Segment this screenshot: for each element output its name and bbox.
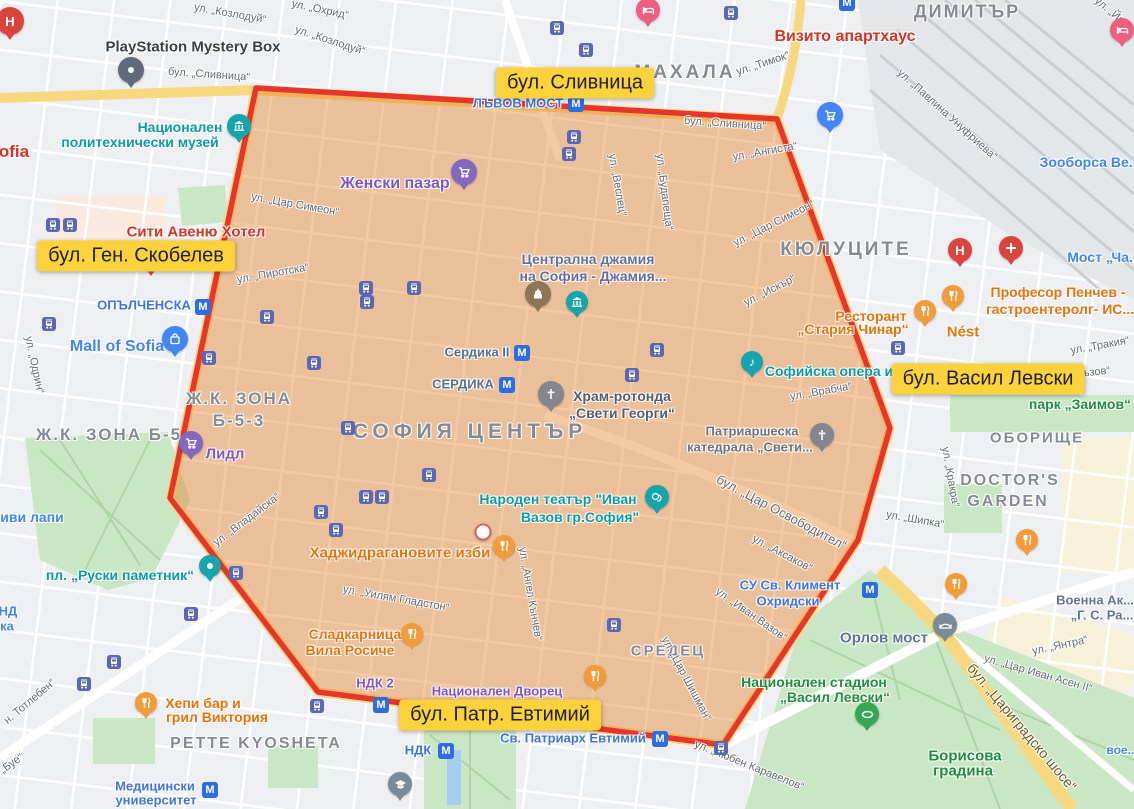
poi-label[interactable]: катедрала „Свети... <box>687 441 813 456</box>
fork-pin[interactable] <box>493 535 515 562</box>
area-label: DOCTOR'S <box>960 472 1060 490</box>
pin-tail <box>948 305 958 312</box>
pin-tail <box>141 712 151 719</box>
bag-pin[interactable] <box>162 326 188 357</box>
pin-tail <box>825 126 835 133</box>
hospital-h-pin[interactable]: H <box>0 7 24 40</box>
fork-icon <box>584 665 606 687</box>
fork-pin[interactable] <box>135 692 157 719</box>
museum-icon <box>566 291 588 313</box>
poi-label[interactable]: вое... <box>1106 744 1134 758</box>
area-label: ОБОРИЩЕ <box>990 429 1084 446</box>
poi-label[interactable]: Вазов гр.София" <box>521 509 639 525</box>
tram-stop-icon[interactable] <box>650 343 664 357</box>
poi-label[interactable]: Професор Пенчев - <box>991 284 1126 300</box>
poi-label[interactable]: пл. „Руски паметник“ <box>46 567 194 583</box>
tram-stop-icon[interactable] <box>63 218 77 232</box>
area-label: КЮЛУЦИТЕ <box>780 239 911 261</box>
map-canvas[interactable]: МАХАЛАДИМИТЪРКЮЛУЦИТЕСОФИЯ ЦЕНТЪРЖ.К. ЗО… <box>0 0 1134 809</box>
tram-stop-icon[interactable] <box>107 655 121 669</box>
poi-label[interactable]: „Стария Чинар“ <box>797 321 908 337</box>
poi-label[interactable]: Сладкарница <box>309 626 402 642</box>
pin-tail <box>546 405 556 412</box>
tram-stop-icon[interactable] <box>260 310 274 324</box>
music-pin[interactable]: ♪ <box>741 351 763 378</box>
pin-tail <box>1022 549 1032 556</box>
poi-label[interactable]: Зооборса Ве... <box>1040 154 1134 170</box>
stadium-icon <box>855 702 879 726</box>
poi-label[interactable]: Патриаршеска <box>706 425 799 440</box>
fork-pin[interactable] <box>584 665 606 692</box>
pin-tail <box>186 453 196 460</box>
poi-label[interactable]: Национален Дворец <box>432 685 563 700</box>
tram-stop-icon[interactable] <box>229 566 243 580</box>
selected-location-dot[interactable] <box>475 524 492 541</box>
poi-label[interactable]: „Г. С. Ра... <box>1071 609 1134 624</box>
tram-stop-icon[interactable] <box>184 607 198 621</box>
pin-tail <box>170 350 180 357</box>
tram-stop-icon[interactable] <box>307 356 321 370</box>
generic-pin[interactable] <box>199 555 221 582</box>
bridge-icon <box>933 613 957 637</box>
tram-stop-icon[interactable] <box>567 130 581 144</box>
fork-icon <box>135 692 157 714</box>
pin-tail <box>395 794 405 801</box>
metro-station-icon[interactable]: М <box>373 697 389 713</box>
fork-icon <box>401 623 423 645</box>
mosque-pin[interactable] <box>525 281 551 312</box>
poi-label[interactable]: Вила Росиче <box>306 642 395 658</box>
metro-station-icon[interactable]: М <box>839 0 855 11</box>
poi-label[interactable]: Визито апартхаус <box>774 28 915 46</box>
tram-stop-icon[interactable] <box>202 351 216 365</box>
generic-icon <box>199 555 221 577</box>
poi-label[interactable]: Св. Патриарх Евтимий <box>500 732 646 747</box>
poi-label[interactable]: PlayStation Mystery Box <box>105 38 280 55</box>
grad-cap-icon <box>388 772 412 796</box>
mosque-icon <box>525 281 551 307</box>
street-highlight-label: бул. Сливница <box>496 68 654 99</box>
poi-label[interactable]: Храм-ротонда <box>573 388 671 404</box>
metro-station-icon[interactable]: М <box>438 743 454 759</box>
poi-label[interactable]: ОПЪЛЧЕНСКА <box>97 299 191 314</box>
fork-icon <box>914 300 936 322</box>
tram-stop-icon[interactable] <box>329 523 343 537</box>
pin-tail <box>940 635 950 642</box>
pin-tail <box>951 593 961 600</box>
poi-label[interactable]: грил Виктория <box>166 709 268 725</box>
area-label: Ж.К. ЗОНА <box>186 389 292 409</box>
poi-label[interactable]: Национален стадион <box>741 674 887 690</box>
fork-icon <box>945 573 967 595</box>
poi-label[interactable]: Лидл <box>206 445 245 462</box>
poi-label[interactable]: Национален <box>138 119 223 135</box>
poi-label[interactable]: Военна Ак... <box>1056 594 1134 609</box>
museum-pin[interactable] <box>566 291 588 318</box>
hospital-cross-pin[interactable] <box>999 236 1023 265</box>
poi-label[interactable]: иви лапи <box>0 509 63 525</box>
metro-station-icon[interactable]: М <box>514 345 530 361</box>
metro-station-icon[interactable]: М <box>652 731 668 747</box>
music-icon: ♪ <box>741 351 763 373</box>
theater-pin[interactable] <box>645 485 669 514</box>
poi-label[interactable]: университет <box>115 794 196 809</box>
poi-label[interactable]: Сити Авеню Хотел <box>127 223 266 240</box>
street-highlight-label: бул. Патр. Евтимий <box>399 700 601 731</box>
tram-stop-icon[interactable] <box>341 421 355 435</box>
poi-label[interactable]: Nést <box>947 323 980 340</box>
cart-pin[interactable] <box>179 431 203 460</box>
fork-icon <box>1016 529 1038 551</box>
bed-pin[interactable] <box>636 0 660 27</box>
poi-label[interactable]: ЛЪВОВ МОСТ <box>473 97 564 112</box>
stadium-pin[interactable] <box>855 702 879 731</box>
poi-label[interactable]: парк „Заимов“ <box>1029 396 1131 412</box>
pin-tail <box>499 555 509 562</box>
poi-label[interactable]: ofia <box>0 142 29 162</box>
pin-tail <box>533 305 543 312</box>
pin-tail <box>652 507 662 514</box>
area-label: СОФИЯ ЦЕНТЪР <box>353 420 588 444</box>
hospital-h-icon: H <box>0 7 24 35</box>
pin-tail <box>5 33 15 40</box>
tram-stop-icon[interactable] <box>46 218 60 232</box>
tram-stop-icon[interactable] <box>550 21 564 35</box>
pin-tail <box>572 311 582 318</box>
tram-stop-icon[interactable] <box>891 341 905 355</box>
church-icon <box>538 381 564 407</box>
grad-cap-pin[interactable] <box>388 772 412 801</box>
fork-pin[interactable] <box>914 300 936 327</box>
street-highlight-label: бул. Васил Левски <box>892 364 1085 395</box>
bed-pin[interactable] <box>1110 18 1134 47</box>
area-label: PETTE KYOSHETA <box>170 735 342 753</box>
poi-label[interactable]: градина <box>933 762 993 779</box>
church-pin[interactable] <box>538 381 564 412</box>
tram-stop-icon[interactable] <box>407 281 421 295</box>
cart-icon <box>179 431 203 455</box>
church-pin[interactable] <box>810 423 834 452</box>
pin-tail <box>126 81 136 88</box>
poi-label[interactable]: „Свети Георги“ <box>569 405 675 421</box>
poi-label[interactable]: Хаджидрагановите изби <box>310 544 491 561</box>
tram-stop-icon[interactable] <box>625 368 639 382</box>
tram-stop-icon[interactable] <box>359 281 373 295</box>
pin-tail <box>862 724 872 731</box>
tram-stop-icon[interactable] <box>724 6 738 20</box>
poi-label[interactable]: Централна джамия <box>522 251 655 267</box>
museum-icon <box>227 114 251 138</box>
hospital-cross-icon <box>999 236 1023 260</box>
poi-label[interactable]: Сердика II <box>444 346 509 361</box>
poi-label[interactable]: Mall of Sofia <box>70 338 164 356</box>
tram-stop-icon[interactable] <box>607 618 621 632</box>
street-highlight-label: бул. Ген. Скобелев <box>37 241 235 272</box>
generic-icon <box>118 57 144 83</box>
poi-label[interactable]: гастроентеролг- ИС... <box>986 301 1134 317</box>
pin-tail <box>407 643 417 650</box>
poi-label[interactable]: Народен театър "Иван <box>479 491 636 507</box>
theater-icon <box>645 485 669 509</box>
fork-pin[interactable] <box>401 623 423 650</box>
pin-tail <box>920 320 930 327</box>
bag-icon <box>162 326 188 352</box>
poi-label[interactable]: СУ Св. Климент <box>740 579 841 594</box>
area-label: ДИМИТЪР <box>914 2 1020 23</box>
poi-label[interactable]: СЕРДИКА <box>432 378 494 393</box>
metro-station-icon[interactable]: М <box>862 582 878 598</box>
poi-label[interactable]: НДК 2 <box>356 677 393 692</box>
poi-label[interactable]: Мост „Ча... <box>1067 249 1134 265</box>
pin-tail <box>1117 40 1127 47</box>
pin-tail <box>955 260 965 267</box>
poi-label[interactable]: ка <box>0 620 14 635</box>
church-icon <box>810 423 834 447</box>
poi-label[interactable]: Женски пазар <box>340 175 449 193</box>
hospital-h-icon: H <box>948 238 972 262</box>
area-label: Ж.К. ЗОНА Б-5 <box>36 425 182 445</box>
tram-stop-icon[interactable] <box>42 317 56 331</box>
pin-tail <box>1006 258 1016 265</box>
tram-stop-icon[interactable] <box>579 43 593 57</box>
tram-stop-icon[interactable] <box>314 505 328 519</box>
fork-pin[interactable] <box>945 573 967 600</box>
pin-tail <box>747 371 757 378</box>
fork-pin[interactable] <box>1016 529 1038 556</box>
bed-icon <box>1110 18 1134 42</box>
pin-tail <box>205 575 215 582</box>
pin-tail <box>817 445 827 452</box>
poi-label[interactable]: НД <box>0 605 17 620</box>
metro-station-icon[interactable]: М <box>499 377 515 393</box>
poi-label[interactable]: Орлов мост <box>840 629 928 646</box>
pin-tail <box>643 20 653 27</box>
tram-stop-icon[interactable] <box>714 741 728 755</box>
fork-icon <box>493 535 515 557</box>
tram-stop-icon[interactable] <box>77 677 91 691</box>
poi-label[interactable]: Охридски <box>756 595 819 610</box>
bridge-pin[interactable] <box>933 613 957 642</box>
cart-icon <box>817 102 843 128</box>
metro-station-icon[interactable]: М <box>202 782 218 798</box>
area-label: Б-5-3 <box>213 411 265 431</box>
metro-station-icon[interactable]: М <box>195 299 211 315</box>
hospital-h-pin[interactable]: H <box>948 238 972 267</box>
pin-tail <box>234 136 244 143</box>
tram-stop-icon[interactable] <box>310 699 324 713</box>
fork-icon <box>942 285 964 307</box>
tram-stop-icon[interactable] <box>422 468 436 482</box>
cart-pin[interactable] <box>451 159 477 190</box>
museum-pin[interactable] <box>227 114 251 143</box>
tram-stop-icon[interactable] <box>562 147 576 161</box>
tram-stop-icon[interactable] <box>359 490 373 504</box>
poi-label[interactable]: НДК <box>405 744 432 759</box>
cart-pin[interactable] <box>817 102 843 133</box>
tram-stop-icon[interactable] <box>360 295 374 309</box>
generic-pin[interactable] <box>118 57 144 88</box>
bed-icon <box>636 0 660 22</box>
cart-icon <box>451 159 477 185</box>
poi-label[interactable]: политехнически музей <box>61 134 218 150</box>
pin-tail <box>590 685 600 692</box>
pin-tail <box>459 183 469 190</box>
fork-pin[interactable] <box>942 285 964 312</box>
tram-stop-icon[interactable] <box>375 490 389 504</box>
area-label: GARDEN <box>967 493 1048 511</box>
